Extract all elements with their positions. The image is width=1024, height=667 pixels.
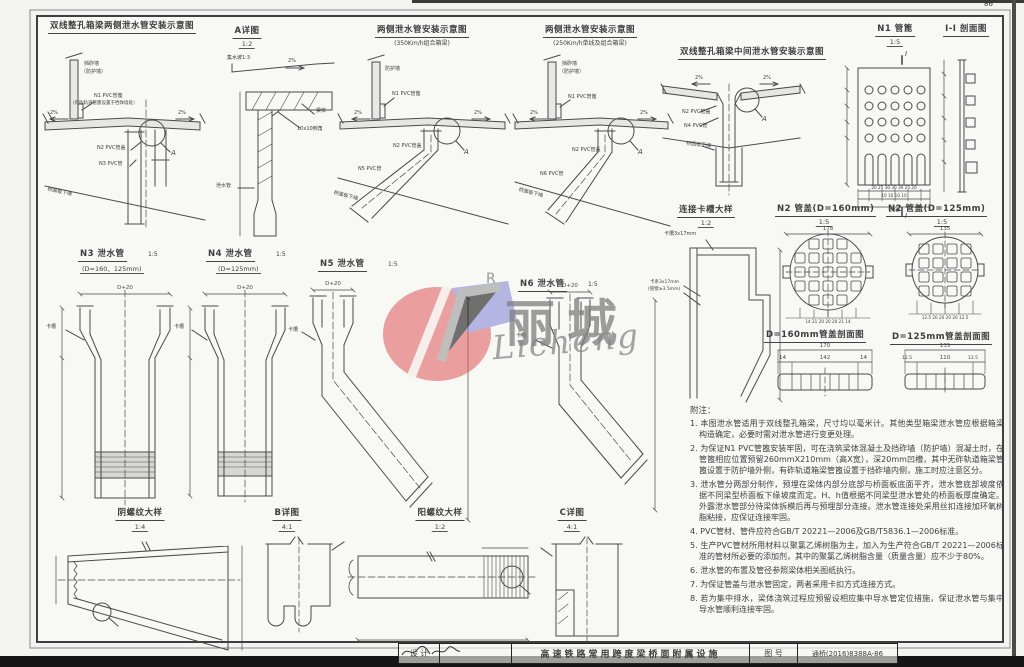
fig2-body-label: 梁体 xyxy=(316,109,326,115)
signature-scribble xyxy=(399,644,463,660)
fig4-cover-label: N2 PVC管盖 xyxy=(572,148,600,154)
title-bar: 设 计 高速铁路常用跨度梁桥面附属设施 图 号 通桥(2016)8388A-86 xyxy=(398,643,898,664)
fig20-title: C详图 xyxy=(558,509,587,521)
fig8-subtitle: (D=160、125mm) xyxy=(80,266,144,274)
fig6-scale: 1:5 xyxy=(887,39,903,47)
fig10-title: N5 泄水管 xyxy=(318,260,367,272)
fig18-title: B详图 xyxy=(273,509,302,521)
note-item-4: 4. PVC管材、管件应符合GB/T 20221—2006及GB/T5836.1… xyxy=(690,526,1004,537)
fig5-cover-label: N2 PVC管盖 xyxy=(682,110,710,116)
fig16-dim-side-r: 12.5 xyxy=(968,356,978,361)
fig4-title: 两侧泄水管安装示意图 xyxy=(543,26,637,38)
note-item-1: 1. 本图泄水管适用于双线整孔箱梁，尺寸均以毫米计。其他类型箱梁泄水管应根据箱梁… xyxy=(690,418,1004,440)
fig7-title: I-I 剖面图 xyxy=(943,25,989,37)
watermark-r-mark: R xyxy=(486,271,496,287)
fig15-title: D=160mm管盖剖面图 xyxy=(764,331,866,343)
fig5-detail-mark-a: A xyxy=(762,115,767,123)
fig1-cover-label: N2 PVC管盖 xyxy=(97,146,125,152)
note-item-3: 3. 泄水管分两部分制作，预埋在梁体内部分底部与桥面板底面平齐，泄水管底部坡度依… xyxy=(690,479,1004,523)
fig16-dim-inner: 110 xyxy=(940,355,951,361)
fig3-cover-label: N2 PVC管盖 xyxy=(393,144,421,150)
fig3-wall-label: 防护墙 xyxy=(385,67,400,73)
fig1-grate-label: N1 PVC管篦 xyxy=(94,94,122,100)
note-item-8: 8. 若为集中排水，梁体浇筑过程应预留设相应集中导水管定位措施，保证泄水管与集中… xyxy=(690,593,1004,615)
note-item-7: 7. 为保证管盖与泄水管固定，两者采用卡扣方式连接方式。 xyxy=(690,579,1004,590)
fig12-label-left2: (管壁≥3.5mm) xyxy=(648,287,680,292)
fig5-title: 双线整孔箱梁中间泄水管安装示意图 xyxy=(678,48,826,60)
fig9-title: N4 泄水管 xyxy=(206,250,255,262)
fig5-pipe-label: N4 PVC管 xyxy=(684,124,707,130)
fig10-scale: 1:5 xyxy=(388,262,398,269)
drawing-no-label: 图 号 xyxy=(749,644,797,663)
fig4-wall-label: 挡砟墙 xyxy=(562,62,577,68)
fig8-dim-top: D+20 xyxy=(117,285,133,291)
fig3-grate-label: N1 PVC管篦 xyxy=(392,92,420,98)
fig13-dim-top: 178 xyxy=(823,226,834,232)
fig2-chamfer-label: 10x10倒角 xyxy=(297,127,323,133)
fig1-slope-left: 2% xyxy=(50,111,58,117)
fig12-label-top: 卡槽3x17mm xyxy=(664,232,696,238)
fig15-dim-inner: 142 xyxy=(820,355,831,361)
fig1-wall-label: 挡砟墙 xyxy=(84,62,99,68)
fig12-scale: 1:2 xyxy=(698,220,714,228)
note-item-2: 2. 为保证N1 PVC管篦安装牢固，可在浇筑梁体混凝土及挡砟墙（防护墙）混凝土… xyxy=(690,443,1004,476)
fig6-section-i-top: I xyxy=(905,50,907,58)
fig12-title: 连接卡槽大样 xyxy=(677,206,735,218)
fig6-title: N1 管篦 xyxy=(875,25,915,37)
fig4-wall-label2: （防护墙） xyxy=(559,70,584,76)
fig3-slope-left: 2% xyxy=(354,111,362,117)
designer-signature xyxy=(439,644,511,663)
fig1-detail-mark-a: A xyxy=(171,149,176,157)
fig19-scale: 1:2 xyxy=(432,524,448,532)
fig1-grate-note: （有砟轨道管篦设置于挡砟墙处） xyxy=(70,101,138,106)
fig3-pipe-label: N5 PVC管 xyxy=(358,167,381,173)
fig14-dim-bottom: 12.5 20 20 20 20 12.5 xyxy=(922,316,969,321)
fig15-dim-side-l: 14 xyxy=(779,355,786,361)
page-number: 86 xyxy=(984,0,993,8)
fig19-title: 阳螺纹大样 xyxy=(415,509,464,521)
fig3-detail-mark-a: A xyxy=(464,148,469,156)
fig8-title: N3 泄水管 xyxy=(78,250,127,262)
fig16-dim-total: 135 xyxy=(940,343,951,349)
fig3-subtitle: (350Km/h组合箱梁) xyxy=(394,41,450,48)
fig18-scale: 4:1 xyxy=(279,524,295,532)
fig6-dims-row1: 20 25 30 30 30 25 20 xyxy=(871,186,916,191)
note-item-6: 6. 泄水管的布置及管径参照梁体相关图纸执行。 xyxy=(690,565,1004,576)
fig5-slope-right: 2% xyxy=(763,76,771,82)
fig16-dim-side-l: 12.5 xyxy=(902,356,912,361)
drawing-no-value: 通桥(2016)8388A-86 xyxy=(797,644,897,663)
fig10-notch-label: 卡槽 xyxy=(288,328,298,334)
fig13-title: N2 管盖(D=160mm) xyxy=(775,205,876,217)
fig4-grate-label: N1 PVC管篦 xyxy=(568,95,596,101)
fig14-dim-top: 135 xyxy=(940,226,951,232)
fig4-slope-left: 2% xyxy=(530,111,538,117)
fig10-dim-top: D+20 xyxy=(325,281,341,287)
fig9-scale: 1:5 xyxy=(276,252,286,259)
fig15-dim-side-r: 14 xyxy=(860,355,867,361)
fig12-label-left1: 卡条3x17mm xyxy=(650,280,679,285)
fig14-title: N2 管盖(D=125mm) xyxy=(886,205,987,217)
fig13-dim-bottom: 14 21 20 20 20 21 14 xyxy=(805,320,850,325)
notes-title: 附注： xyxy=(690,404,1004,416)
fig4-slope-right: 2% xyxy=(640,111,648,117)
project-title: 高速铁路常用跨度梁桥面附属设施 xyxy=(511,644,749,663)
fig1-title: 双线整孔箱梁两侧泄水管安装示意图 xyxy=(48,22,196,34)
fig4-subtitle: (250Km/h单线及组合箱梁) xyxy=(553,41,627,48)
fig2-pipe-label: 泄水管 xyxy=(216,184,231,190)
fig1-slope-right: 2% xyxy=(178,111,186,117)
fig2-scale: 1:2 xyxy=(239,41,255,49)
fig9-subtitle: (D=125mm) xyxy=(216,266,261,274)
fig20-scale: 4:1 xyxy=(564,524,580,532)
fig4-pipe-label: N6 PVC管 xyxy=(540,172,563,178)
fig2-title: A详图 xyxy=(232,27,261,39)
fig2-slope-note: 集水坡1:3 xyxy=(227,56,250,62)
fig4-detail-mark-a: A xyxy=(638,148,643,156)
fig1-wall-label2: （防护墙） xyxy=(81,70,106,76)
fig1-pipe-label: N3 PVC管 xyxy=(99,162,122,168)
fig2-slope: 2% xyxy=(288,59,296,65)
fig8-notch-label: 卡槽 xyxy=(46,325,56,331)
fig9-notch-label: 卡槽 xyxy=(174,325,184,331)
fig15-dim-total: 170 xyxy=(820,343,831,349)
fig6-dims-row2: 10 10 10 10 xyxy=(881,194,906,199)
fig17-scale: 1:4 xyxy=(132,524,148,532)
fig3-title: 两侧泄水管安装示意图 xyxy=(375,26,469,38)
note-item-5: 5. 生产PVC管材所用材料以聚氯乙烯树脂为主，加入为生产符合GB/T 2022… xyxy=(690,540,1004,562)
notes-block: 附注： 1. 本图泄水管适用于双线整孔箱梁，尺寸均以毫米计。其他类型箱梁泄水管应… xyxy=(690,404,1004,618)
fig9-dim-top: D+20 xyxy=(237,285,253,291)
drawing-sheet: 86 双线整孔箱梁两侧泄水管安装示意图 挡砟墙 （防护墙） N1 PVC管篦 （… xyxy=(0,0,1024,667)
fig3-slope-right: 2% xyxy=(474,111,482,117)
fig8-scale: 1:5 xyxy=(148,252,158,259)
fig5-slope-left: 2% xyxy=(695,76,703,82)
fig17-title: 阴螺纹大样 xyxy=(115,509,164,521)
